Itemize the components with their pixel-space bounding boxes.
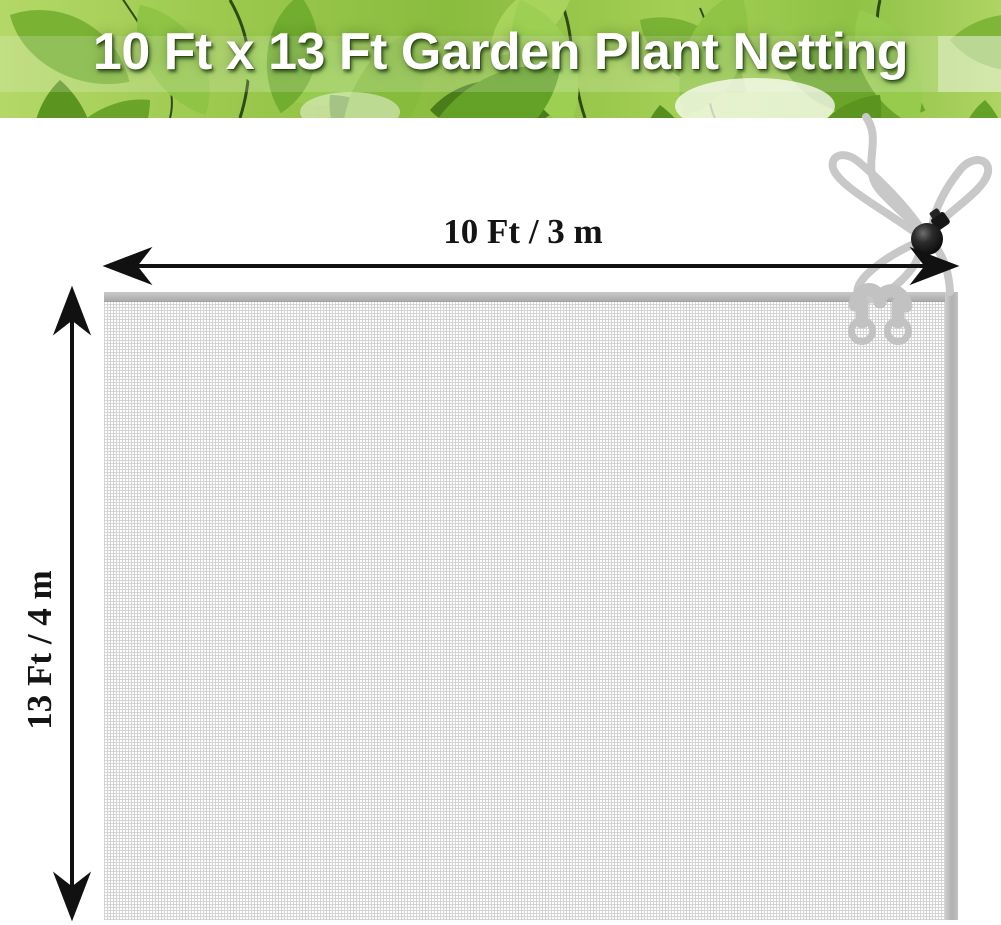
width-dimension-label: 10 Ft / 3 m	[323, 212, 723, 252]
banner: 10 Ft x 13 Ft Garden Plant Netting	[0, 0, 1001, 118]
netting-right-hem	[945, 292, 958, 920]
width-dimension-arrow	[104, 248, 958, 284]
cord-lock-toggle	[911, 206, 951, 255]
drawstring-cord	[833, 117, 989, 300]
banner-title: 10 Ft x 13 Ft Garden Plant Netting	[0, 24, 1001, 81]
netting-top-hem	[104, 292, 958, 302]
netting-mesh	[104, 292, 958, 920]
height-dimension-label: 13 Ft / 4 m	[20, 545, 60, 755]
product-image: 10 Ft x 13 Ft Garden Plant Netting	[0, 0, 1001, 925]
